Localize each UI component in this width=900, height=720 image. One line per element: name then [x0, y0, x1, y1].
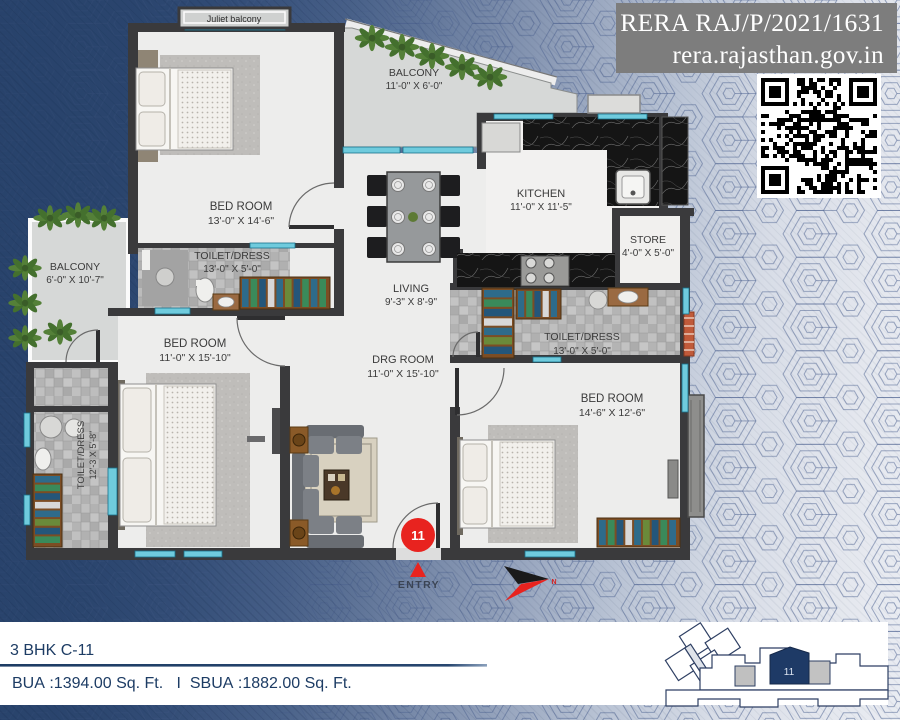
svg-text:BALCONY: BALCONY: [50, 261, 100, 273]
svg-text:3 BHK C-11: 3 BHK C-11: [10, 642, 94, 659]
svg-text:13'-0" X 5'-0": 13'-0" X 5'-0": [203, 264, 261, 275]
svg-text:11: 11: [411, 528, 425, 543]
svg-text:11'-0" X 6'-0": 11'-0" X 6'-0": [386, 81, 443, 92]
svg-text:BED ROOM: BED ROOM: [581, 393, 644, 405]
svg-text:BALCONY: BALCONY: [389, 67, 439, 79]
svg-text:BED ROOM: BED ROOM: [164, 338, 227, 350]
svg-text:DRG ROOM: DRG ROOM: [372, 354, 434, 366]
svg-text:11: 11: [784, 667, 795, 678]
svg-text:RERA RAJ/P/2021/1631: RERA RAJ/P/2021/1631: [620, 8, 884, 37]
svg-text:12'-3 X 5'-8": 12'-3 X 5'-8": [88, 431, 98, 480]
svg-text:STORE: STORE: [630, 234, 666, 246]
svg-text:14'-6" X 12'-6": 14'-6" X 12'-6": [579, 407, 646, 419]
svg-text:ENTRY: ENTRY: [398, 579, 440, 591]
svg-text:13'-0" X 5'-0": 13'-0" X 5'-0": [553, 346, 611, 357]
svg-text:LIVING: LIVING: [393, 283, 429, 295]
svg-text:BED ROOM: BED ROOM: [210, 201, 273, 213]
svg-text:BUA :1394.00 Sq. Ft. I SBUA: BUA :1394.00 Sq. Ft. I SBUA :1882.00 Sq.…: [12, 675, 352, 692]
svg-text:N: N: [551, 579, 556, 586]
svg-text:6'-0" X 10'-7": 6'-0" X 10'-7": [46, 275, 104, 286]
svg-text:rera.rajasthan.gov.in: rera.rajasthan.gov.in: [672, 42, 884, 69]
svg-text:Juliet balcony: Juliet balcony: [207, 14, 262, 24]
svg-text:11'-0" X 15'-10": 11'-0" X 15'-10": [159, 352, 231, 364]
svg-text:TOILET/DRESS: TOILET/DRESS: [544, 331, 620, 343]
svg-text:11'-0" X 11'-5": 11'-0" X 11'-5": [510, 202, 572, 213]
svg-text:4'-0" X 5'-0": 4'-0" X 5'-0": [622, 248, 675, 259]
svg-text:11'-0" X 15'-10": 11'-0" X 15'-10": [367, 368, 439, 380]
svg-text:TOILET/DRESS: TOILET/DRESS: [194, 250, 270, 262]
svg-text:9'-3" X 8'-9": 9'-3" X 8'-9": [385, 297, 438, 308]
svg-text:13'-0" X 14'-6": 13'-0" X 14'-6": [208, 215, 275, 227]
svg-text:TOILET/DRESS: TOILET/DRESS: [76, 421, 87, 489]
svg-text:KITCHEN: KITCHEN: [517, 188, 565, 200]
